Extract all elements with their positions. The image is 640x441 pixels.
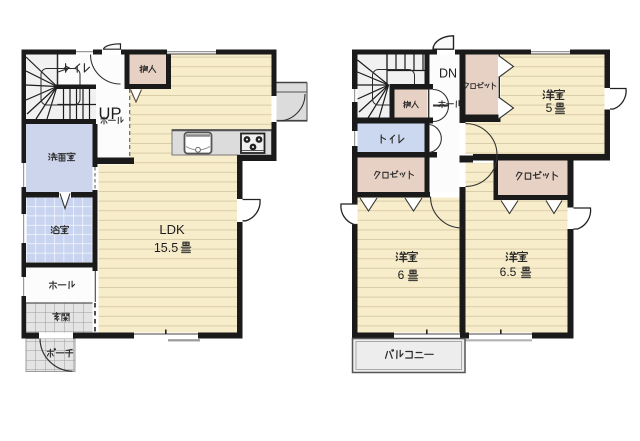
svg-text:LDK: LDK [159,222,185,237]
svg-text:6.5: 6.5 [500,265,517,279]
svg-text:6: 6 [398,268,405,282]
svg-text:DN: DN [439,67,457,81]
svg-text:15.5: 15.5 [154,241,178,255]
svg-text:5: 5 [546,101,553,115]
